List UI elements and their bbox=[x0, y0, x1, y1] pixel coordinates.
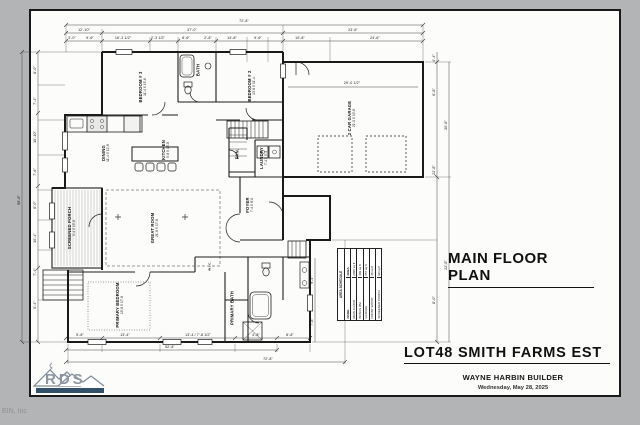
dim-label: 16'-3 1/2" bbox=[115, 35, 131, 39]
dim-label: 8'-8" bbox=[286, 333, 294, 337]
dim-label: 4'-8" bbox=[252, 333, 260, 337]
table-row: MAIN FLOOR2095 sq ft bbox=[350, 249, 356, 320]
dim-label: 13'-4" bbox=[120, 333, 130, 337]
room-label-great-room: GREAT ROOM 21'-8 X 17'-8 bbox=[151, 213, 160, 244]
room-label-wic: W.I.C. bbox=[208, 261, 211, 270]
room-label-dining: DINING 11'-4 X 12'-8 bbox=[102, 144, 111, 162]
dim-label: 10'-8" bbox=[295, 35, 305, 39]
table-row: SCREENED PORCH90 sq ft bbox=[375, 249, 381, 320]
room-label-bedroom2: BEDROOM # 2 13'-6 X 11'-4 bbox=[248, 70, 257, 101]
builder-name: WAYNE HARBIN BUILDER bbox=[428, 373, 598, 382]
room-label-bedroom3: BEDROOM # 3 11'-4 X 13'-6 bbox=[139, 71, 148, 102]
dim-label: 5'-8" bbox=[76, 333, 84, 337]
dim-label: 4'-4" bbox=[432, 54, 436, 62]
dim-label: 23'-6" bbox=[348, 27, 358, 31]
room-label-bath: BATH bbox=[197, 64, 202, 76]
dim-label: 24'-6" bbox=[370, 35, 380, 39]
drawing-date: Wednesday, May 28, 2025 bbox=[428, 385, 598, 391]
dim-label: 37'-0" bbox=[187, 27, 197, 31]
room-label-pantry: PAN. bbox=[236, 149, 241, 160]
dim-label: 72'-8" bbox=[263, 357, 273, 361]
dim-label: 10'-10" bbox=[33, 131, 37, 143]
dim-label: 52'-8" bbox=[165, 345, 175, 349]
dim-label: 2'-3 1/2" bbox=[151, 35, 165, 39]
dim-label: 13'-4 / 7'-8 1/2" bbox=[185, 333, 211, 337]
table-row: GARAGE657 sq ft bbox=[363, 249, 369, 320]
dim-label: 9'-6" bbox=[86, 35, 94, 39]
dim-label: 10'-4" bbox=[33, 233, 37, 243]
room-label-primary-bedroom: PRIMARY BEDROOM 15'-8 X 17'-8 bbox=[116, 282, 125, 327]
dim-label: 72'-8" bbox=[239, 19, 249, 23]
dim-label: 8'-0" bbox=[33, 201, 37, 209]
dim-label: 6'-8" bbox=[432, 88, 436, 96]
dim-label: 9'-4" bbox=[310, 276, 314, 284]
plan-sheet bbox=[29, 9, 621, 397]
rds-logo: RDS bbox=[30, 357, 110, 397]
room-label-kitchen: KITCHEN 9'-8 X 16'-8 bbox=[162, 140, 171, 160]
dim-label: 8'-6" bbox=[182, 35, 190, 39]
dim-label: 8'-0" bbox=[33, 66, 37, 74]
room-label-screened-porch: SCREENED PORCH 9'-4 X 15'-8 bbox=[68, 207, 77, 249]
room-label-laundry: LAUNDRY 7'-4 X 5'-4 bbox=[260, 147, 269, 169]
room-label-foyer: FOYER 7'-4 X 8'-0 bbox=[246, 197, 255, 212]
dim-label: 2'-8" bbox=[204, 35, 212, 39]
dim-label: 7'-4" bbox=[33, 97, 37, 105]
drawing-page: 72'-8" 12'-10" 37'-0" 23'-6" 3'-0" 9'-6"… bbox=[0, 0, 640, 425]
dim-label: 7'-8" bbox=[310, 318, 314, 326]
dim-label: 14'-8" bbox=[227, 35, 237, 39]
table-row: BONUS RM409 sq ft bbox=[356, 249, 362, 320]
dim-label: 7'-4" bbox=[33, 268, 37, 276]
logo-bar bbox=[36, 388, 104, 393]
dim-label: 30'-8" bbox=[444, 120, 448, 130]
page-title: MAIN FLOOR PLAN bbox=[448, 250, 594, 288]
area-schedule-header: NAMEAREA bbox=[344, 249, 350, 320]
dim-label: 12'-10" bbox=[78, 27, 90, 31]
area-schedule-table: AREA SCHEDULE NAMEAREA MAIN FLOOR2095 sq… bbox=[337, 248, 382, 321]
dim-label: 5'-4" bbox=[33, 301, 37, 309]
lot-title: LOT48 SMITH FARMS EST bbox=[404, 345, 610, 364]
corner-stamp: EIN, Inc bbox=[2, 408, 27, 415]
dim-label: 29'-0 1/2" bbox=[344, 81, 360, 85]
dim-label: 3'-0" bbox=[68, 35, 76, 39]
dim-label: 9'-6" bbox=[254, 35, 262, 39]
dim-label: 58'-8" bbox=[17, 195, 21, 205]
table-row: FRONT ENTRY45 sq ft bbox=[369, 249, 375, 320]
logo-text: RDS bbox=[45, 371, 86, 388]
room-label-garage: 2 CAR GARAGE 21'-0 X 19'-8 bbox=[348, 101, 357, 136]
room-label-primary-bath: PRIMARY BATH bbox=[231, 291, 236, 325]
dim-label: 22'-8" bbox=[432, 165, 436, 175]
dim-label: 8'-0" bbox=[432, 296, 436, 304]
dim-label: 7'-6" bbox=[33, 168, 37, 176]
